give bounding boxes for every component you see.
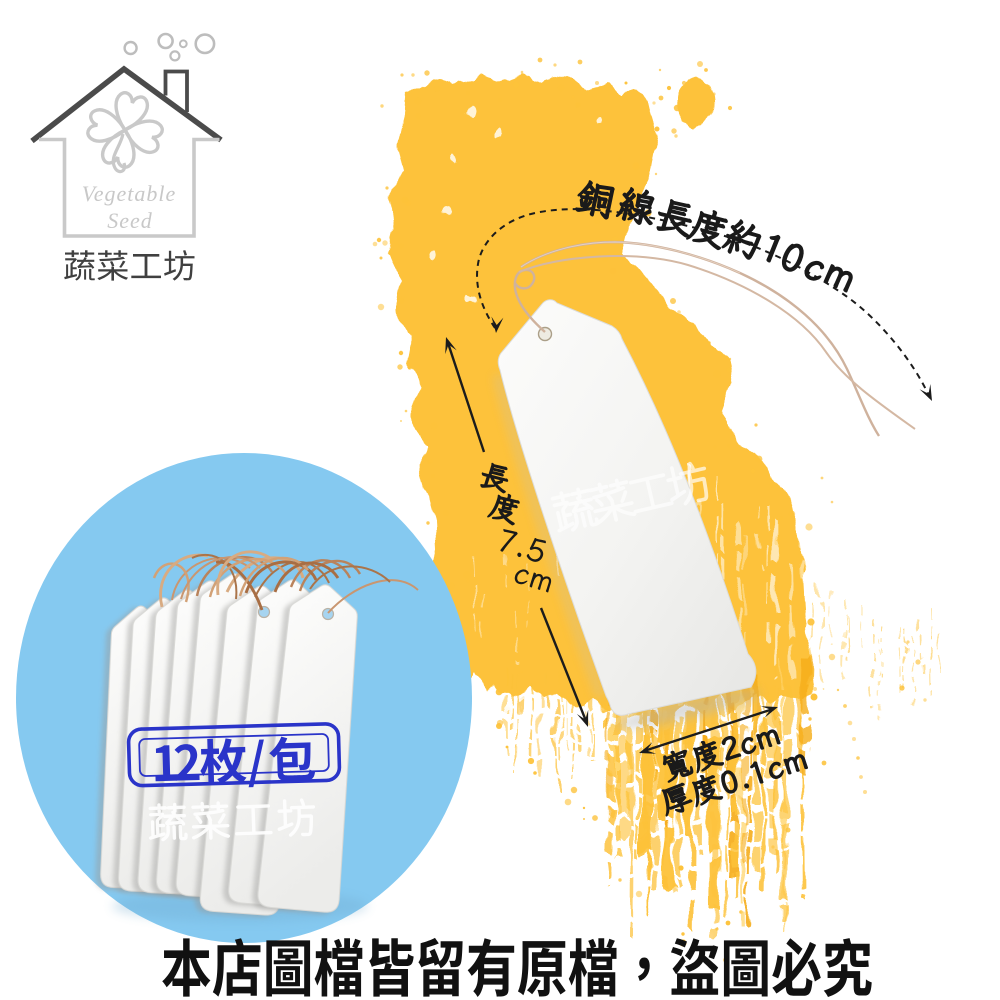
svg-text:Vegetable: Vegetable (82, 181, 177, 206)
svg-text:Seed: Seed (107, 208, 153, 233)
